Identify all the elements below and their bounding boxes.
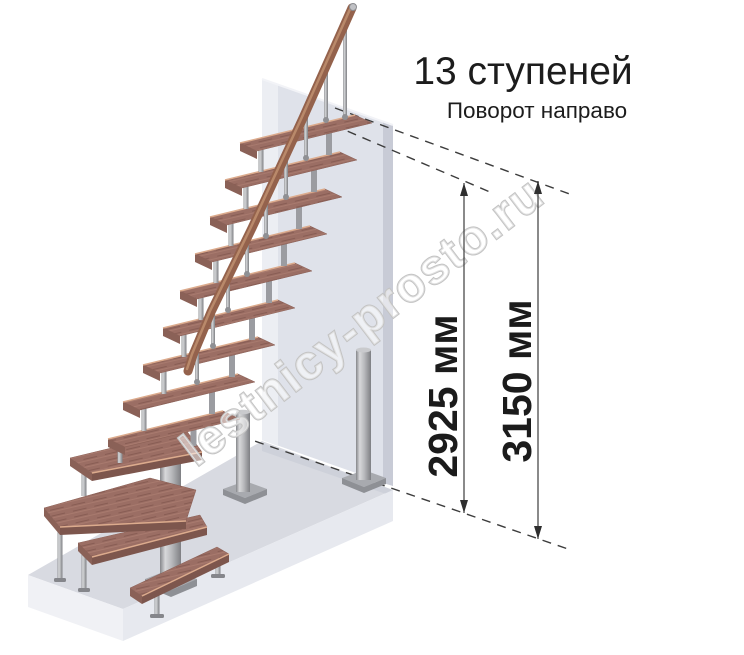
staircase-diagram-svg: lestnicy-prosto.ru 2925 мм 3150 мм 13 ст… xyxy=(0,0,744,655)
winder-support-rod xyxy=(58,532,63,582)
baluster-flange xyxy=(323,117,329,123)
rod-foot xyxy=(78,588,90,592)
staircase-diagram-image: lestnicy-prosto.ru 2925 мм 3150 мм 13 ст… xyxy=(0,0,744,655)
dimension-label-2925: 2925 мм xyxy=(420,314,466,477)
baluster-flange xyxy=(244,271,250,277)
baluster-flange xyxy=(283,194,289,200)
baluster-flange xyxy=(225,307,231,313)
arrow-down-icon xyxy=(460,500,468,513)
baluster-flange xyxy=(210,343,216,349)
baluster-flange xyxy=(263,233,269,239)
tread-3-winder xyxy=(44,478,196,535)
baluster-flange xyxy=(303,155,309,161)
rod-foot xyxy=(54,578,66,582)
baluster-flange xyxy=(194,379,200,385)
baluster-rod xyxy=(343,24,347,119)
page-title: 13 ступеней xyxy=(413,50,632,93)
leg-foot xyxy=(150,614,164,618)
leg-foot xyxy=(211,574,225,578)
dimension-label-3150: 3150 мм xyxy=(494,299,540,462)
handrail-top-cap xyxy=(350,4,357,11)
wall-side-column xyxy=(356,350,371,480)
arrow-up-icon xyxy=(460,183,468,196)
page-subtitle: Поворот направо xyxy=(447,98,627,123)
baluster-flange xyxy=(342,114,348,120)
